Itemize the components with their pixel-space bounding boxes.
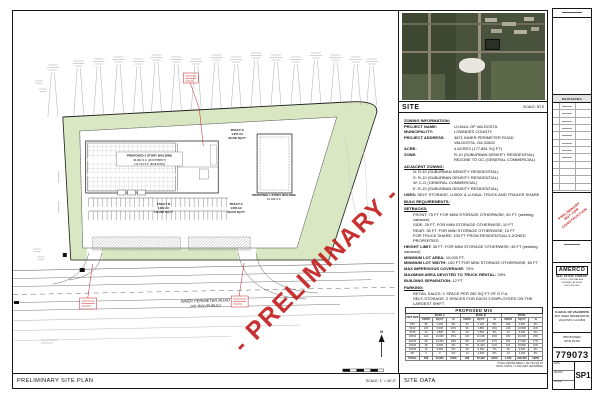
cell-date: DATE	[553, 362, 574, 371]
sheet-scale: SCALE: 1" = 40'-0"	[366, 379, 396, 383]
mix-cell: 100%	[529, 356, 543, 360]
aerial-road	[428, 13, 431, 100]
title-block-grid: DATE DRAWN SCALE SP1	[553, 362, 591, 389]
site-data-title: SITE DATA	[404, 378, 436, 384]
site-label: SITE	[402, 104, 420, 111]
revision-row	[553, 147, 591, 154]
zoning-line: ZONING INFORMATION:	[404, 119, 544, 124]
aerial-field	[491, 61, 545, 100]
zoning-line: BULK REQUIREMENTS:	[404, 200, 544, 205]
graphic-scale-bar	[343, 369, 384, 372]
svg-text:200' R/W (PUBLIC): 200' R/W (PUBLIC)	[189, 304, 221, 309]
svg-text:15,188 S.F.: 15,188 S.F.	[267, 197, 281, 201]
revision-row	[553, 132, 591, 139]
drawing-sheet: PROPOSED 3 STORY BUILDING 36,062 S.F. (F…	[0, 0, 600, 400]
revision-row	[553, 118, 591, 125]
building-3-story: PROPOSED 3 STORY BUILDING 36,062 S.F. (F…	[86, 141, 219, 195]
revision-row	[553, 110, 591, 117]
mix-cell: TOTAL	[406, 356, 420, 360]
revision-row	[553, 162, 591, 169]
seal-box	[553, 241, 591, 263]
mix-cell: 54,400	[474, 356, 488, 360]
aerial-building	[502, 22, 516, 26]
aerial-building	[531, 27, 539, 31]
mix-row: TOTAL53651,800100%49654,400100%1,032106,…	[406, 356, 543, 360]
mix-cell: 106,200	[515, 356, 529, 360]
mix-cell: 1,032	[501, 356, 515, 360]
mix-cell: 51,800	[433, 356, 447, 360]
zoning-line: ACRE:4 ACRES (177,861 SQ FT)	[404, 147, 544, 152]
zoning-line: FOR TRUCK SHARE: 100 FT FROM RESIDENTIAL…	[413, 234, 544, 243]
amerco-logo: AMERCO	[556, 266, 588, 275]
mix-col-header: UNIT SIZE	[406, 314, 420, 322]
project-block: U-HAUL OF VALDOSTA 3871 INNER PERIMETER …	[553, 308, 591, 333]
svg-text:N: N	[380, 329, 383, 334]
mix-note: TOTAL UNITS = 1,032 (NET LEASABLE)	[405, 365, 543, 368]
title-block-blank	[553, 18, 591, 95]
revision-row	[553, 154, 591, 161]
zoning-line: E: R-10 (SUBURBAN DENSITY RESIDENTIAL)	[413, 187, 544, 192]
site-data-panel: SITE SCALE: NTS ZONING INFORMATION:PROJE…	[398, 11, 547, 373]
site-photo-caption-bar: SITE SCALE: NTS	[399, 101, 547, 113]
mix-cell: 100%	[447, 356, 461, 360]
bottom-bar-right: SITE DATA	[399, 374, 547, 388]
zoning-line: USES: SELF STORAGE, U-BOX & U-HAUL TRUCK…	[404, 193, 544, 198]
title-block: REVISIONS PRELIMINARY NOT FOR CONSTRUCTI…	[552, 8, 592, 390]
mix-cell: 536	[419, 356, 433, 360]
revisions-table	[553, 103, 591, 193]
title-block-header	[553, 9, 591, 18]
project-name: U-HAUL OF VALDOSTA	[553, 310, 591, 314]
zoning-line: REZONE TO GC (GENERAL COMMERCIAL)	[454, 158, 544, 163]
revision-row	[553, 140, 591, 147]
hatched-island	[188, 237, 250, 250]
svg-text:INNER PERIMETER ROAD: INNER PERIMETER ROAD	[181, 297, 231, 303]
svg-text:85,230 SQ FT: 85,230 SQ FT	[228, 136, 246, 140]
mix-table-notes: TOTAL GROSS AREA = 111,744 SQ FT TOTAL U…	[405, 362, 543, 369]
svg-text:69,076 SQ FT: 69,076 SQ FT	[227, 210, 245, 214]
sheet-number: SP1	[575, 362, 591, 389]
aerial-building	[524, 17, 534, 21]
aerial-photo	[402, 13, 545, 100]
aerial-road	[402, 23, 545, 25]
aerial-building	[514, 30, 527, 34]
company-subtitle: REAL ESTATE COMPANY	[553, 276, 591, 278]
zoning-line: SELF-STORAGE: 2 SPACES FOR EACH 3 EMPLOY…	[413, 297, 544, 305]
sheet-title: PRELIMINARY SITE PLAN	[17, 378, 93, 384]
zoning-line: BUILDING SEPARATION: 12 FT.	[404, 279, 544, 284]
aerial-road	[402, 51, 545, 53]
site-location-marker	[485, 39, 500, 50]
aerial-building	[459, 58, 485, 73]
revision-row	[553, 103, 591, 110]
preliminary-stamp: PRELIMINARY NOT FOR CONSTRUCTION	[553, 193, 591, 241]
zoning-information: ZONING INFORMATION:PROJECT NAME:U-HAUL O…	[404, 116, 544, 305]
sheet-title-block: PROPOSED SITE PLAN	[553, 333, 591, 348]
cell-drawn: DRAWN	[553, 371, 574, 380]
cell-scale: SCALE	[553, 381, 574, 389]
site-photo-scale: SCALE: NTS	[523, 105, 544, 109]
mix-cell: 100%	[488, 356, 502, 360]
road-label: INNER PERIMETER ROAD 200' R/W (PUBLIC)	[181, 297, 231, 308]
proposed-mix-table: PROPOSED MIXUNIT SIZEBLDG ABLDG BTOTALUN…	[405, 307, 543, 361]
aerial-field	[402, 74, 445, 100]
hatched-island	[93, 237, 181, 250]
company-block: AMERCO REAL ESTATE COMPANY 2727 N. CENTR…	[553, 263, 591, 308]
north-arrow: N	[379, 329, 385, 357]
revision-row	[553, 125, 591, 132]
aerial-building	[491, 29, 502, 33]
building-1-story: PROPOSED 1 STORY BUILDING 15,188 S.F.	[252, 134, 297, 201]
revision-row	[553, 169, 591, 176]
bottom-bar-left: PRELIMINARY SITE PLAN SCALE: 1" = 40'-0"	[13, 374, 399, 388]
svg-text:146,068 SQ FT: 146,068 SQ FT	[154, 210, 173, 214]
revision-row	[553, 184, 591, 191]
proposed-mix: PROPOSED MIXUNIT SIZEBLDG ABLDG BTOTALUN…	[405, 307, 543, 371]
aerial-road	[478, 13, 481, 100]
company-address: 2727 N. CENTRAL AVE. PHOENIX, AZ 85004 (…	[553, 279, 591, 288]
svg-text:111,744 S.F. (BUILDING): 111,744 S.F. (BUILDING)	[134, 162, 165, 166]
project-address: 3871 INNER PERIMETER RD	[553, 315, 591, 318]
project-number: 779073	[553, 348, 591, 362]
sheet-bottom-bar: PRELIMINARY SITE PLAN SCALE: 1" = 40'-0"…	[13, 373, 547, 388]
main-frame: PROPOSED 3 STORY BUILDING 36,062 S.F. (F…	[12, 10, 548, 389]
aerial-building	[485, 18, 497, 22]
zoning-line: HEIGHT LIMIT: 35 FT. FOR MINI STORAGE OT…	[404, 245, 544, 254]
mix-cell: 496	[460, 356, 474, 360]
revision-row	[553, 176, 591, 183]
zoning-line: FRONT: 75 FT FOR MINI STORAGE OTHERWISE;…	[413, 213, 544, 222]
revisions-header: REVISIONS	[553, 95, 591, 103]
